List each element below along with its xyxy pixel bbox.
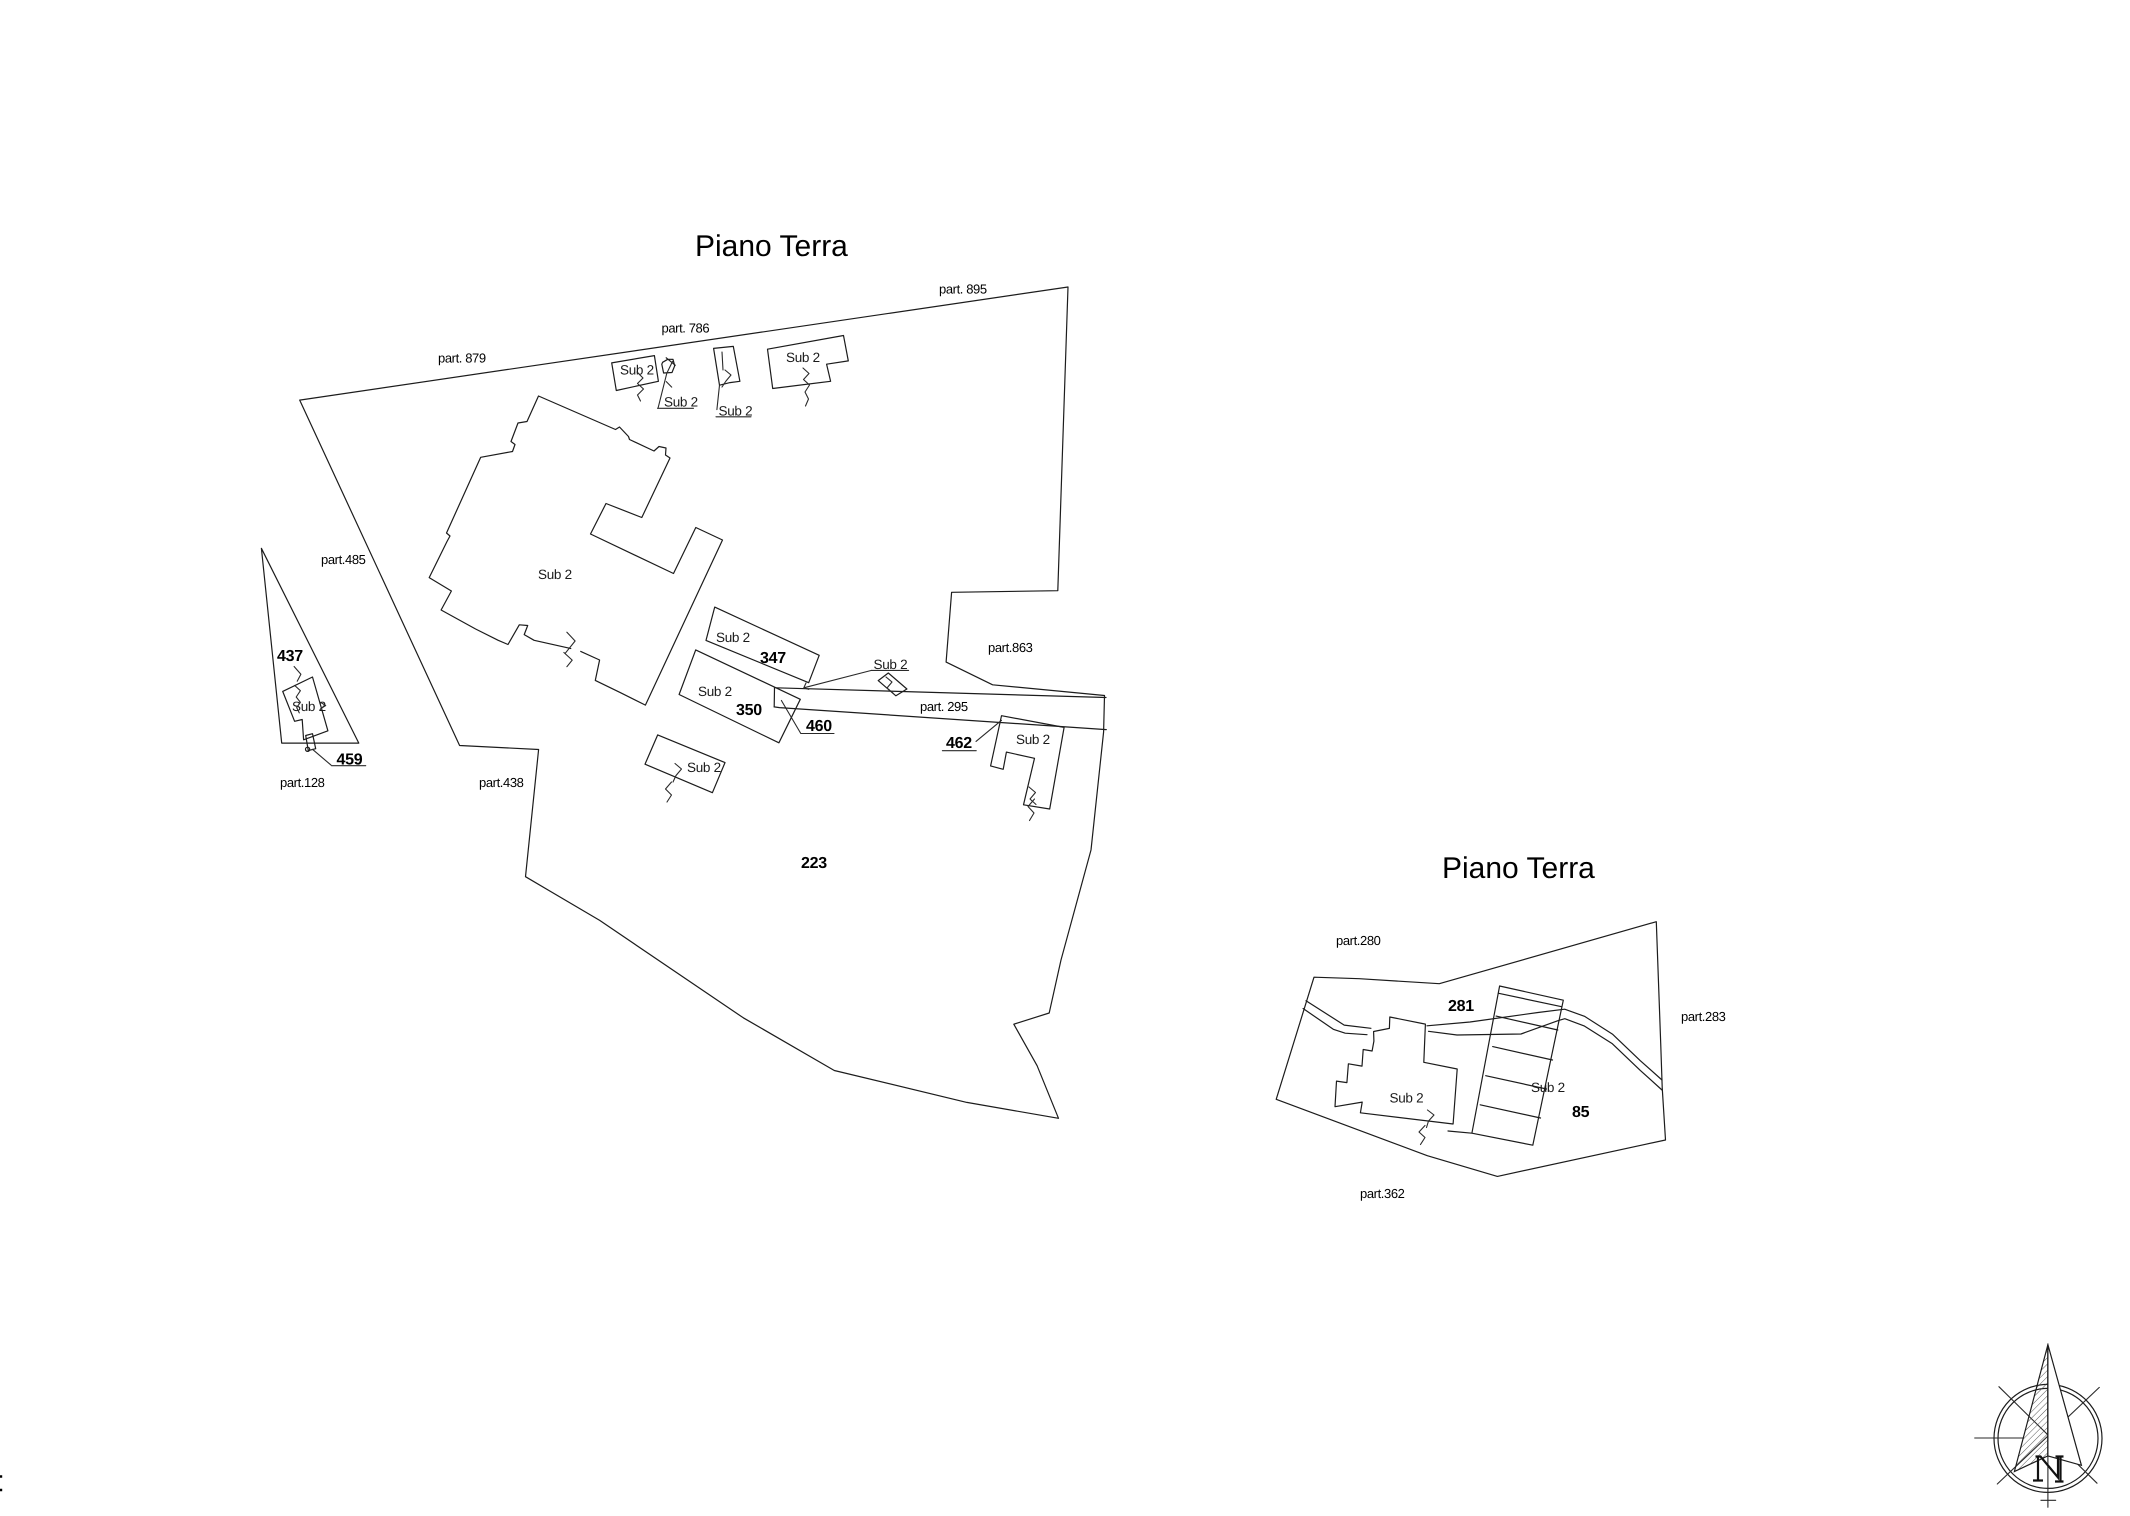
svg-text:Piano Terra: Piano Terra bbox=[695, 230, 848, 263]
svg-text:347: 347 bbox=[760, 650, 786, 667]
svg-text:Sub 2: Sub 2 bbox=[664, 395, 698, 410]
svg-text:Sub 2: Sub 2 bbox=[716, 630, 750, 645]
svg-text:part.485: part.485 bbox=[321, 552, 366, 567]
svg-text:85: 85 bbox=[1572, 1104, 1590, 1121]
svg-text:350: 350 bbox=[736, 702, 762, 719]
svg-text:Sub 2: Sub 2 bbox=[687, 760, 721, 775]
svg-text:Sub 2: Sub 2 bbox=[1390, 1091, 1424, 1106]
svg-text:part.280: part.280 bbox=[1336, 933, 1381, 948]
svg-text:part. 895: part. 895 bbox=[939, 282, 987, 297]
svg-text:part.362: part.362 bbox=[1360, 1186, 1405, 1201]
svg-text:part.128: part.128 bbox=[280, 775, 325, 790]
svg-text:part.863: part.863 bbox=[988, 640, 1033, 655]
svg-text:Sub 2: Sub 2 bbox=[1016, 732, 1050, 747]
svg-text:223: 223 bbox=[801, 855, 827, 872]
svg-text:Piano Terra: Piano Terra bbox=[1442, 852, 1595, 885]
svg-text:437: 437 bbox=[277, 648, 303, 665]
svg-text:Sub 2: Sub 2 bbox=[874, 657, 908, 672]
svg-text:Sub 2: Sub 2 bbox=[698, 684, 732, 699]
svg-text:part.438: part.438 bbox=[479, 775, 524, 790]
svg-text:part.283: part.283 bbox=[1681, 1009, 1726, 1024]
svg-text:part. 295: part. 295 bbox=[920, 699, 968, 714]
svg-text:part. 786: part. 786 bbox=[662, 321, 710, 336]
svg-text:Sub 2: Sub 2 bbox=[1531, 1080, 1565, 1095]
svg-text:460: 460 bbox=[806, 718, 832, 735]
svg-text:part. 879: part. 879 bbox=[438, 351, 486, 366]
svg-text:281: 281 bbox=[1448, 998, 1474, 1015]
svg-text:Sub 2: Sub 2 bbox=[786, 350, 820, 365]
svg-text:Sub 2: Sub 2 bbox=[620, 363, 654, 378]
svg-text:Sub 2: Sub 2 bbox=[538, 567, 572, 582]
svg-text:462: 462 bbox=[946, 735, 972, 752]
